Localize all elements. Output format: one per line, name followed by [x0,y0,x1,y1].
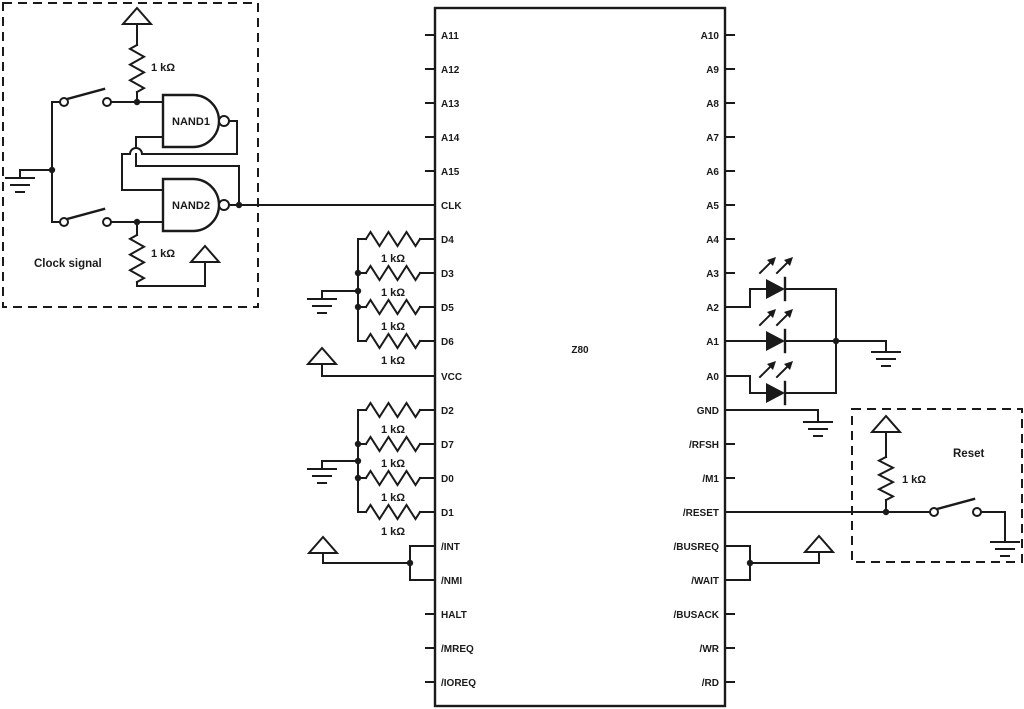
pin-label-right: A2 [706,303,719,314]
pin-label-right: /WAIT [691,576,719,587]
pin-label-right: GND [697,406,719,417]
resistor [366,403,420,417]
pin-label-left: /IOREQ [441,678,476,689]
junction-dot [236,202,242,208]
resistor [366,334,420,348]
nand1-gate-label: NAND1 [172,116,210,128]
pin-label-right: /BUSREQ [673,542,719,553]
light-arrow [760,262,771,273]
ground-symbol [308,299,336,313]
reset-box-label: Reset [953,448,984,460]
pin-label-left: D2 [441,406,454,417]
pin-label-left: CLK [441,201,462,212]
resistor [879,457,893,500]
resistor-value-label: 1 kΩ [381,355,405,367]
pin-label-right: A0 [706,372,719,383]
clock-switch-top-terminal [103,98,111,106]
pin-label-right: /M1 [702,474,719,485]
wire [981,512,1005,542]
reset-switch-terminal [930,508,938,516]
junction-dot [355,475,361,481]
pin-label-left: D6 [441,337,454,348]
pin-label-left: D7 [441,440,454,451]
pin-label-left: D5 [441,303,454,314]
pin-label-left: A12 [441,65,460,76]
reset-switch-terminal [973,508,981,516]
wire [725,376,766,393]
resistor-value-label: 1 kΩ [381,253,405,265]
led-diode [766,383,785,403]
wire [725,289,766,307]
pin-label-right: A8 [706,99,719,110]
wire [20,170,52,178]
resistor-value-label: 1 kΩ [381,458,405,470]
resistor-value-label: 1 kΩ [381,287,405,299]
inverter-bubble [219,116,229,126]
vcc-symbol [805,536,833,552]
switch-common-bus [52,102,60,222]
pin-label-right: /RESET [683,508,719,519]
inverter-bubble [219,200,229,210]
wire [323,553,410,563]
ground-symbol [6,178,34,192]
resistor-value-label: 1 kΩ [902,474,926,486]
pin-label-right: /WR [700,644,720,655]
pin-label-left: /NMI [441,576,462,587]
pin-label-right: A1 [706,337,719,348]
pin-label-left: A11 [441,31,459,42]
resistor [366,505,420,519]
clock-switch-top-terminal [60,98,68,106]
ground-symbol [308,469,336,483]
pin-label-right: A9 [706,65,719,76]
pin-label-right: A5 [706,201,719,212]
ground-symbol [872,352,900,366]
resistor [366,266,420,280]
pin-label-left: /MREQ [441,644,474,655]
vcc-symbol [191,246,219,262]
wire [137,262,205,286]
wire [136,137,163,148]
pin-label-left: HALT [441,610,467,621]
clock-switch-bottom-terminal [103,218,111,226]
vcc-symbol [308,348,336,364]
light-arrow [777,262,788,273]
light-arrow [777,314,788,325]
clock-switch-top-lever [67,89,104,99]
junction-dot [355,270,361,276]
light-arrow [760,366,771,377]
light-arrow [777,366,788,377]
led-diode [766,279,785,299]
pin-label-left: D4 [441,235,454,246]
clock-switch-bottom-lever [67,209,104,219]
z80-chip-body [435,8,725,706]
wire [322,291,358,299]
junction-dot [134,99,140,105]
wire [725,410,818,422]
pin-label-right: /RFSH [689,440,719,451]
wire [410,546,435,580]
led-diode [766,331,785,351]
resistor [366,437,420,451]
wire [836,341,886,352]
resistor [130,45,144,92]
pin-label-left: /INT [441,542,460,553]
pin-label-right: A7 [706,133,719,144]
resistor-value-label: 1 kΩ [151,248,175,260]
wire [725,546,750,580]
ground-symbol [991,542,1019,556]
pin-label-left: D3 [441,269,454,280]
schematic-canvas: Z80A11A12A13A14A15CLKD4D3D5D6VCCD2D7D0D1… [0,0,1024,709]
pin-label-left: D0 [441,474,454,485]
light-arrow [760,314,771,325]
wire [750,552,819,563]
pin-label-left: A13 [441,99,460,110]
resistor-value-label: 1 kΩ [381,526,405,538]
ground-symbol [804,422,832,436]
pin-label-left: A14 [441,133,460,144]
resistor [366,471,420,485]
z80-schematic: Z80A11A12A13A14A15CLKD4D3D5D6VCCD2D7D0D1… [0,0,1024,709]
pin-label-left: D1 [441,508,454,519]
clock-box-label: Clock signal [34,258,102,270]
resistor [366,300,420,314]
vcc-symbol [309,537,337,553]
junction-dot [355,304,361,310]
resistor-value-label: 1 kΩ [381,492,405,504]
pin-label-left: A15 [441,167,460,178]
pin-label-right: A3 [706,269,719,280]
resistor [130,235,144,282]
reset-switch-lever [937,499,974,509]
resistor-value-label: 1 kΩ [151,62,175,74]
wire [322,461,358,469]
vcc-symbol [123,8,151,24]
pin-label-left: VCC [441,372,462,383]
pin-label-right: /RD [702,678,719,689]
junction-dot [355,441,361,447]
vcc-symbol [872,416,900,432]
pin-label-right: A4 [706,235,719,246]
resistor [366,232,420,246]
pin-label-right: A6 [706,167,719,178]
chip-label: Z80 [571,345,589,356]
wire [322,364,435,376]
resistor-value-label: 1 kΩ [381,321,405,333]
nand2-gate-label: NAND2 [172,200,210,212]
resistor-value-label: 1 kΩ [381,424,405,436]
wire [122,154,163,190]
clock-switch-bottom-terminal [60,218,68,226]
pin-label-right: /BUSACK [673,610,719,621]
pin-label-right: A10 [701,31,720,42]
